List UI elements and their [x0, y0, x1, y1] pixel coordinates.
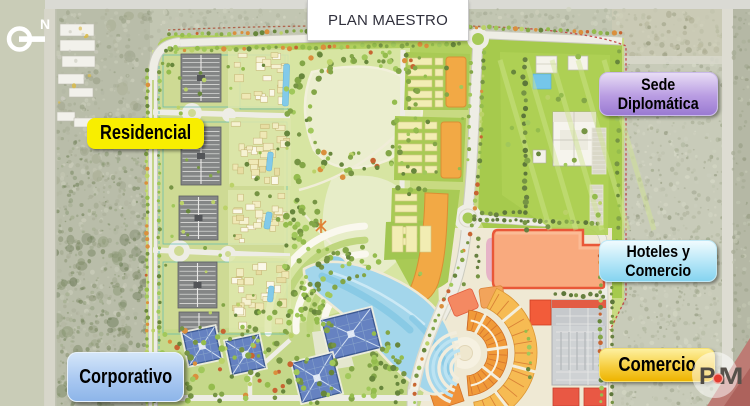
svg-text:N: N: [40, 16, 50, 32]
